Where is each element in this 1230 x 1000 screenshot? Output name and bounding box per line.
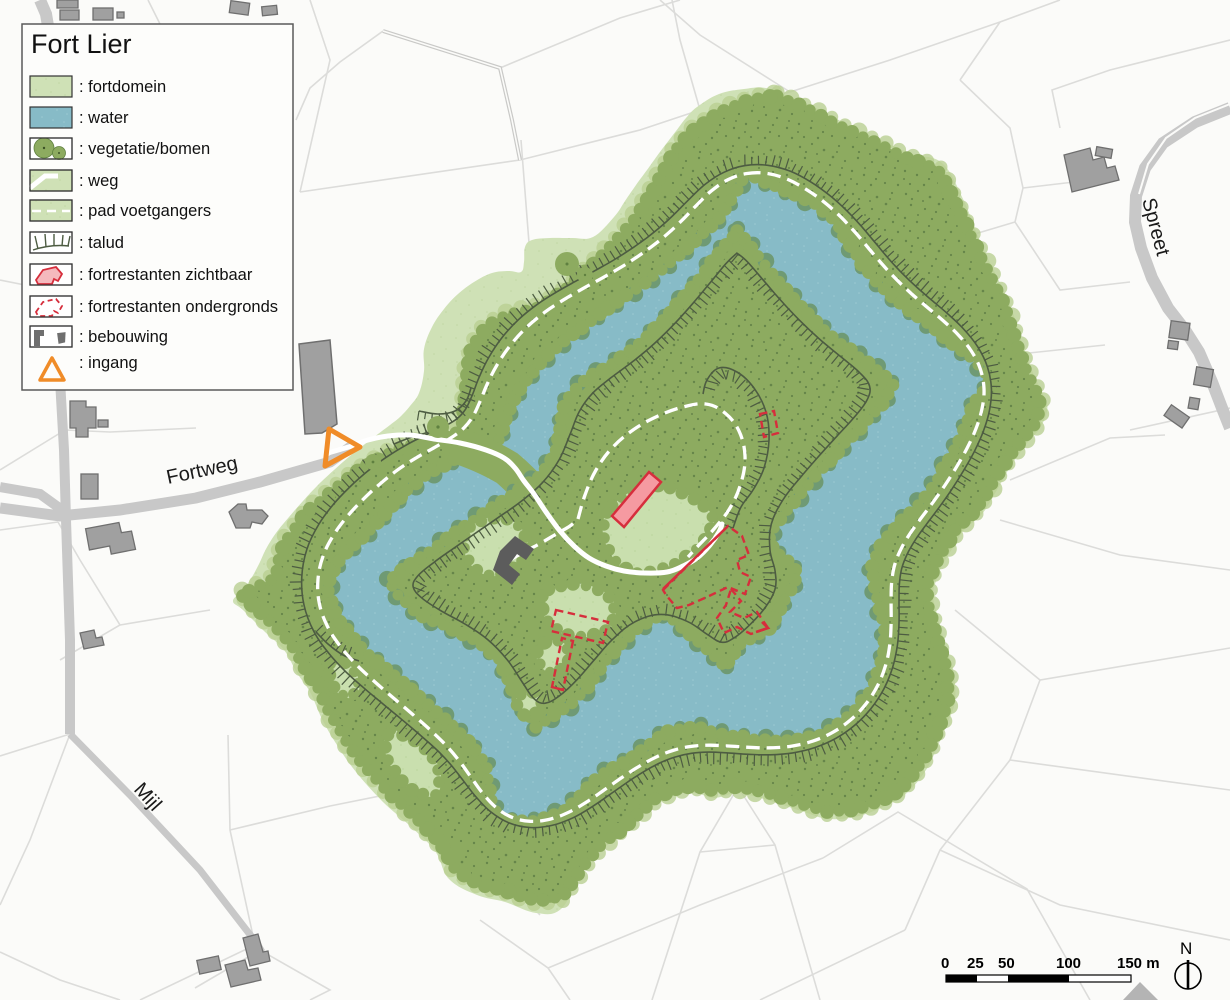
svg-text:N: N: [1180, 939, 1192, 958]
svg-text:: weg: : weg: [79, 172, 118, 190]
svg-text:: vegetatie/bomen: : vegetatie/bomen: [79, 140, 210, 158]
svg-text:: fortrestanten ondergronds: : fortrestanten ondergronds: [79, 298, 278, 316]
svg-text:150 m: 150 m: [1117, 955, 1160, 972]
svg-text:100: 100: [1056, 955, 1081, 972]
svg-text:0: 0: [941, 955, 949, 972]
svg-text:25: 25: [967, 955, 984, 972]
svg-text:: talud: : talud: [79, 234, 124, 252]
svg-text:: bebouwing: : bebouwing: [79, 328, 168, 346]
svg-text:: ingang: : ingang: [79, 354, 138, 372]
svg-text:: pad voetgangers: : pad voetgangers: [79, 202, 211, 220]
svg-text:: water: : water: [79, 109, 129, 127]
svg-text:50: 50: [998, 955, 1015, 972]
svg-text:: fortdomein: : fortdomein: [79, 78, 166, 96]
svg-text:: fortrestanten zichtbaar: : fortrestanten zichtbaar: [79, 266, 253, 284]
svg-text:Fort Lier: Fort Lier: [31, 29, 132, 59]
